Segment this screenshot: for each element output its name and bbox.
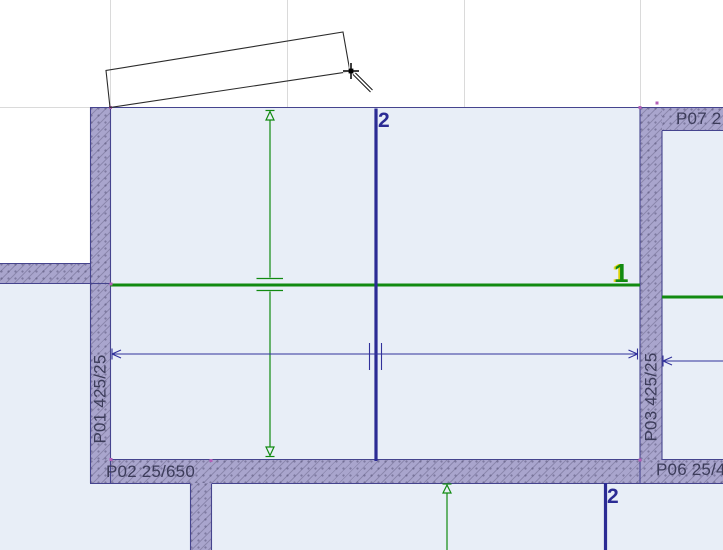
wall-tag-p06[interactable]: P06 25/4	[656, 461, 723, 478]
section-marker-label-lower[interactable]: 2	[607, 487, 619, 506]
crosshair-cursor-icon	[343, 63, 359, 79]
hotspot-node[interactable]	[109, 102, 659, 463]
level-marker-label[interactable]: 1	[614, 262, 628, 284]
dimension-horizontal-blue-right[interactable]	[663, 356, 723, 367]
plan-canvas[interactable]: P01 425/25 P02 25/650 P03 425/25 P06 25/…	[0, 0, 723, 550]
wall-edge-lines	[0, 108, 723, 550]
rubber-band-line	[353, 72, 373, 92]
wall-tag-p03[interactable]: P03 425/25	[643, 353, 660, 442]
section-marker-label-main[interactable]: 2	[378, 111, 390, 130]
wall-tag-p01[interactable]: P01 425/25	[92, 355, 109, 444]
wall-tag-p02[interactable]: P02 25/650	[106, 463, 195, 480]
wall-tag-p07[interactable]: P07 2	[676, 110, 721, 127]
sketch-rectangle-in-progress[interactable]	[106, 32, 350, 108]
dimension-vertical-green-lower[interactable]	[443, 484, 452, 550]
